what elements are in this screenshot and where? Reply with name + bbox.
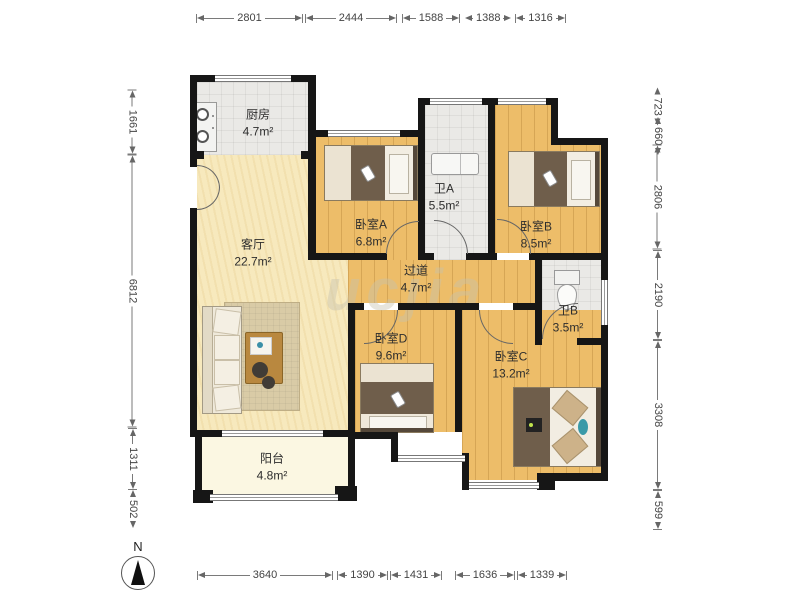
room-label-kitchen: 厨房 4.7m² <box>243 107 274 142</box>
sofa-cushion <box>213 385 242 412</box>
room-area: 3.5m² <box>553 320 584 337</box>
room-label-bath-a: 卫A 5.5m² <box>429 181 460 216</box>
decor-icon <box>578 419 588 435</box>
room-name: 客厅 <box>234 237 271 254</box>
pillow <box>571 160 591 200</box>
room-name: 厨房 <box>243 107 274 124</box>
knob-icon <box>212 115 214 117</box>
wall <box>577 338 601 345</box>
burner-icon <box>196 130 209 143</box>
sofa <box>202 306 242 414</box>
dim-right-1: 723 <box>650 88 666 117</box>
dim-top-3: 1588 <box>402 10 460 26</box>
dim-top-2: 2444 <box>305 10 397 26</box>
window <box>328 130 400 137</box>
wall <box>601 325 608 481</box>
room-name: 卧室D <box>375 331 408 348</box>
dim-top-4: 1388 <box>465 10 510 26</box>
wall <box>529 253 608 260</box>
bed-sheet <box>325 146 352 200</box>
wall <box>348 303 355 439</box>
dim-right-6: 599 <box>650 490 666 530</box>
room-label-living: 客厅 22.7m² <box>234 237 271 272</box>
dim-right-5: 3308 <box>650 340 666 490</box>
room-area: 4.8m² <box>257 468 288 485</box>
wall <box>308 75 316 260</box>
room-name: 卧室C <box>492 349 529 366</box>
dim-left-1: 1661 <box>125 90 141 155</box>
burner-icon <box>196 108 209 121</box>
room-label-bedroom-d: 卧室D 9.6m² <box>375 331 408 366</box>
window <box>469 482 539 489</box>
wall <box>535 260 542 345</box>
dim-bottom-3: 1431 <box>390 567 442 583</box>
dim-left-4: 502 <box>125 490 141 518</box>
basin-divider <box>460 154 461 174</box>
toilet-tank <box>554 270 580 285</box>
room-label-bath-b: 卫B 3.5m² <box>553 303 584 338</box>
room-area: 22.7m² <box>234 254 271 271</box>
sofa-cushion <box>212 308 241 335</box>
wall <box>301 151 315 159</box>
wall <box>190 208 197 437</box>
room-area: 9.6m² <box>375 348 408 365</box>
room-area: 6.8m² <box>355 234 387 251</box>
bed-bedroom-a <box>324 145 418 201</box>
room-area: 4.7m² <box>401 280 432 297</box>
window <box>601 280 608 325</box>
wall <box>466 253 497 260</box>
window <box>430 98 482 105</box>
wall <box>190 151 204 159</box>
compass-icon <box>121 556 155 590</box>
dim-right-2: 660 <box>650 117 666 145</box>
dim-left-2: 6812 <box>125 155 141 428</box>
dim-top-1: 2801 <box>196 10 303 26</box>
wall <box>513 303 535 310</box>
dim-top-5: 1316 <box>515 10 566 26</box>
bed-bedroom-c <box>513 387 603 467</box>
stool <box>262 376 275 389</box>
north-label: N <box>121 539 155 554</box>
room-label-bedroom-b: 卧室B 8.5m² <box>520 219 552 254</box>
sofa-back <box>203 307 213 413</box>
bed-sheet <box>509 152 535 206</box>
window <box>210 494 338 501</box>
dim-bottom-4: 1636 <box>455 567 515 583</box>
plant-icon <box>257 342 263 348</box>
room-label-balcony: 阳台 4.8m² <box>257 451 288 486</box>
room-name: 卫B <box>553 303 584 320</box>
wall <box>190 430 222 437</box>
balcony-slider-window <box>222 430 323 437</box>
wall <box>455 303 462 432</box>
headboard <box>595 152 599 206</box>
room-label-bedroom-c: 卧室C 13.2m² <box>492 349 529 384</box>
dim-left-3: 1311 <box>125 428 141 490</box>
bed-bedroom-d <box>360 363 434 433</box>
window <box>398 455 465 462</box>
wall <box>398 303 479 310</box>
wall <box>551 138 608 145</box>
dim-right-3: 2806 <box>650 145 666 250</box>
wall <box>548 473 608 481</box>
compass-needle <box>131 560 145 585</box>
wall <box>311 253 387 260</box>
indicator-dot <box>529 423 533 427</box>
sofa-cushion <box>214 360 240 385</box>
bed-sheet <box>361 364 433 383</box>
room-area: 13.2m² <box>492 366 529 383</box>
knob-icon <box>212 127 214 129</box>
dim-bottom-2: 1390 <box>337 567 388 583</box>
wall <box>535 338 542 345</box>
dim-bottom-1: 3640 <box>197 567 333 583</box>
wall <box>601 138 608 265</box>
room-area: 8.5m² <box>520 236 552 253</box>
wall <box>418 253 434 260</box>
wall <box>355 303 364 310</box>
wall <box>335 486 357 501</box>
window <box>215 75 291 82</box>
pillow <box>389 154 409 194</box>
outside-notch <box>558 99 608 138</box>
room-name: 过道 <box>401 263 432 280</box>
headboard <box>413 146 417 200</box>
sofa-cushion <box>214 335 240 360</box>
room-name: 卧室B <box>520 219 552 236</box>
bed-bedroom-b <box>508 151 600 207</box>
wall <box>391 432 398 462</box>
room-name: 卧室A <box>355 217 387 234</box>
washbasin <box>431 153 479 175</box>
floorplan: ucjia <box>190 75 610 509</box>
room-label-bedroom-a: 卧室A 6.8m² <box>355 217 387 252</box>
room-area: 4.7m² <box>243 124 274 141</box>
room-name: 阳台 <box>257 451 288 468</box>
room-label-hallway: 过道 4.7m² <box>401 263 432 298</box>
wall <box>601 260 608 280</box>
dim-right-4: 2190 <box>650 250 666 340</box>
dim-bottom-5: 1339 <box>517 567 567 583</box>
room-name: 卫A <box>429 181 460 198</box>
wall <box>488 98 495 260</box>
room-area: 5.5m² <box>429 198 460 215</box>
window <box>498 98 546 105</box>
wall <box>418 98 425 260</box>
